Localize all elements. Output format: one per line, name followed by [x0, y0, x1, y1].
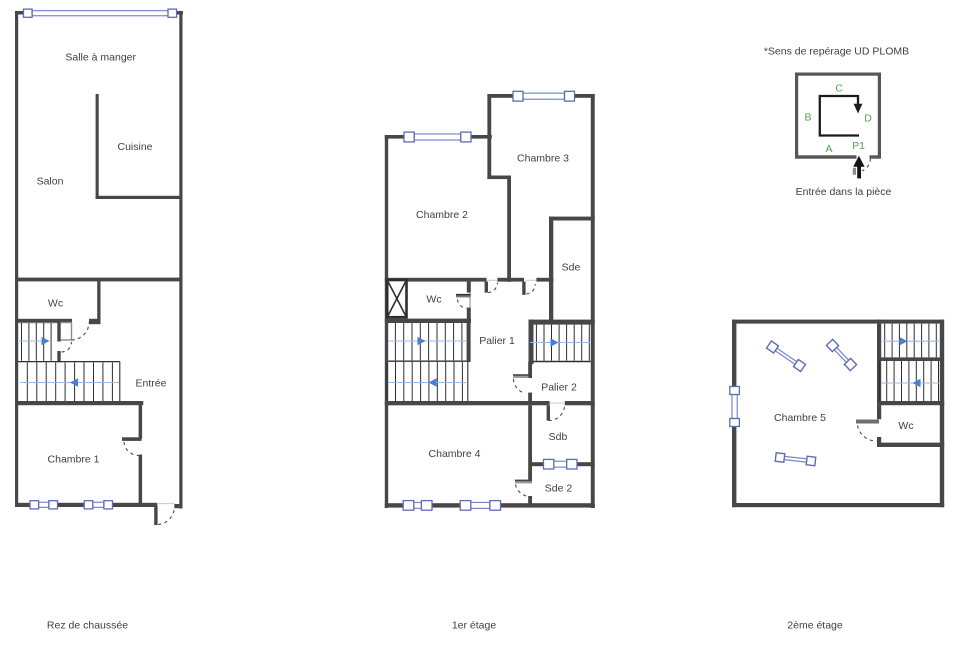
svg-text:A: A — [825, 143, 832, 155]
svg-text:2ème étage: 2ème étage — [787, 620, 843, 632]
svg-text:Chambre 1: Chambre 1 — [48, 453, 100, 465]
svg-text:B: B — [804, 112, 811, 124]
svg-text:P1: P1 — [852, 140, 865, 152]
svg-text:Wc: Wc — [48, 298, 63, 310]
svg-text:Chambre 3: Chambre 3 — [517, 153, 569, 165]
svg-text:C: C — [835, 83, 843, 95]
svg-text:Chambre 5: Chambre 5 — [774, 412, 826, 424]
svg-text:Sdb: Sdb — [549, 431, 568, 443]
svg-text:Wc: Wc — [426, 294, 441, 306]
svg-text:Palier 2: Palier 2 — [541, 382, 577, 394]
svg-text:Cuisine: Cuisine — [117, 141, 152, 153]
svg-text:Sde 2: Sde 2 — [545, 483, 573, 495]
svg-text:Sde: Sde — [562, 262, 581, 274]
svg-text:Palier 1: Palier 1 — [479, 335, 515, 347]
svg-text:Entrée: Entrée — [136, 378, 167, 390]
svg-text:D: D — [864, 113, 872, 125]
svg-text:Salle à manger: Salle à manger — [65, 52, 136, 64]
svg-text:Wc: Wc — [898, 420, 913, 432]
svg-text:1er étage: 1er étage — [452, 620, 497, 632]
svg-text:Salon: Salon — [37, 175, 64, 187]
svg-text:Rez de chaussée: Rez de chaussée — [47, 620, 128, 632]
svg-text:Entrée dans la pièce: Entrée dans la pièce — [796, 186, 892, 198]
svg-text:Chambre 4: Chambre 4 — [429, 448, 481, 460]
svg-text:Chambre 2: Chambre 2 — [416, 209, 468, 221]
svg-text:*Sens de repérage UD PLOMB: *Sens de repérage UD PLOMB — [764, 46, 909, 58]
